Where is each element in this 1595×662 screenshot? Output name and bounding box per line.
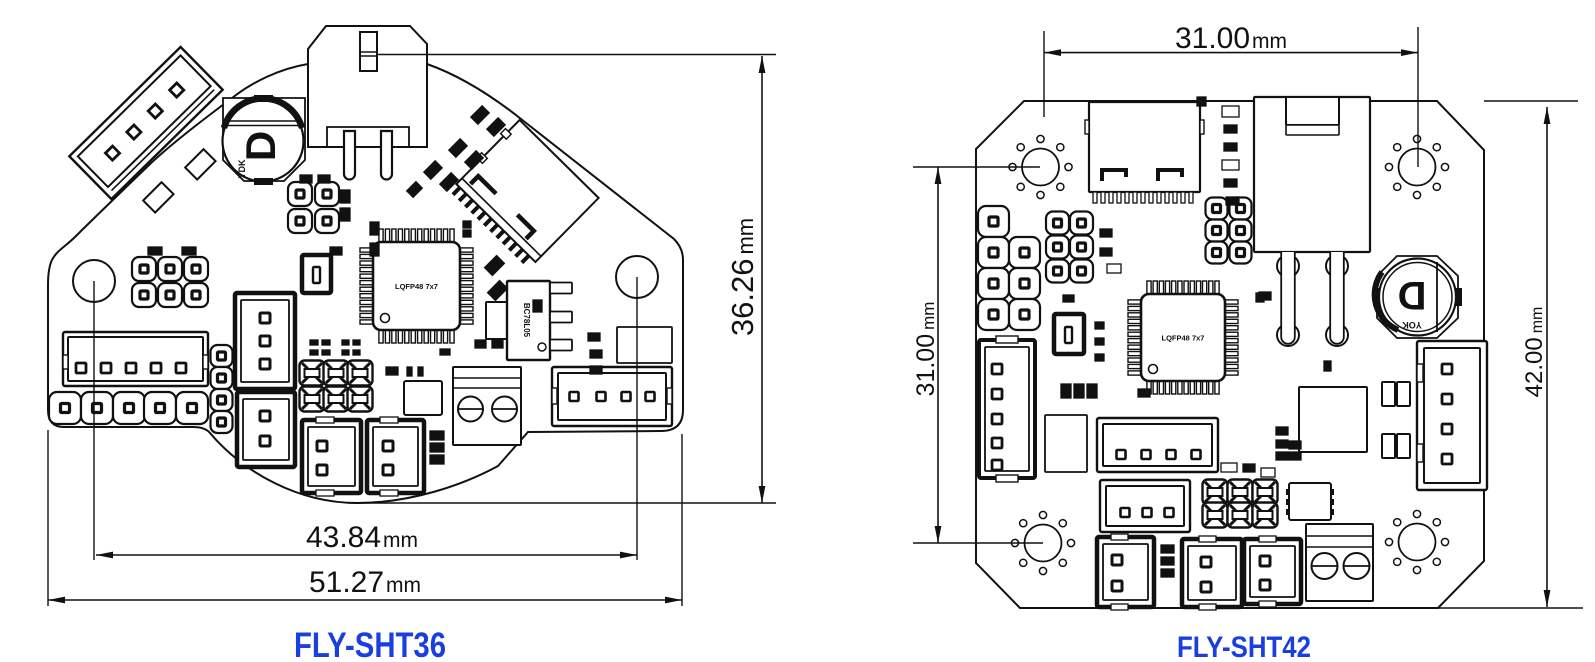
svg-text:D: D	[1398, 273, 1427, 317]
svg-text:LQFP48 7x7: LQFP48 7x7	[1162, 334, 1205, 343]
svg-text:D: D	[237, 131, 284, 161]
svg-text:YDK: YDK	[237, 159, 247, 179]
svg-text:LQFP48 7x7: LQFP48 7x7	[395, 282, 438, 291]
svg-text:YOK: YOK	[1402, 320, 1422, 330]
svg-text:FLY-SHT42: FLY-SHT42	[1177, 631, 1311, 662]
svg-text:FLY-SHT36: FLY-SHT36	[294, 626, 446, 662]
svg-text:BC78L05: BC78L05	[522, 303, 531, 338]
